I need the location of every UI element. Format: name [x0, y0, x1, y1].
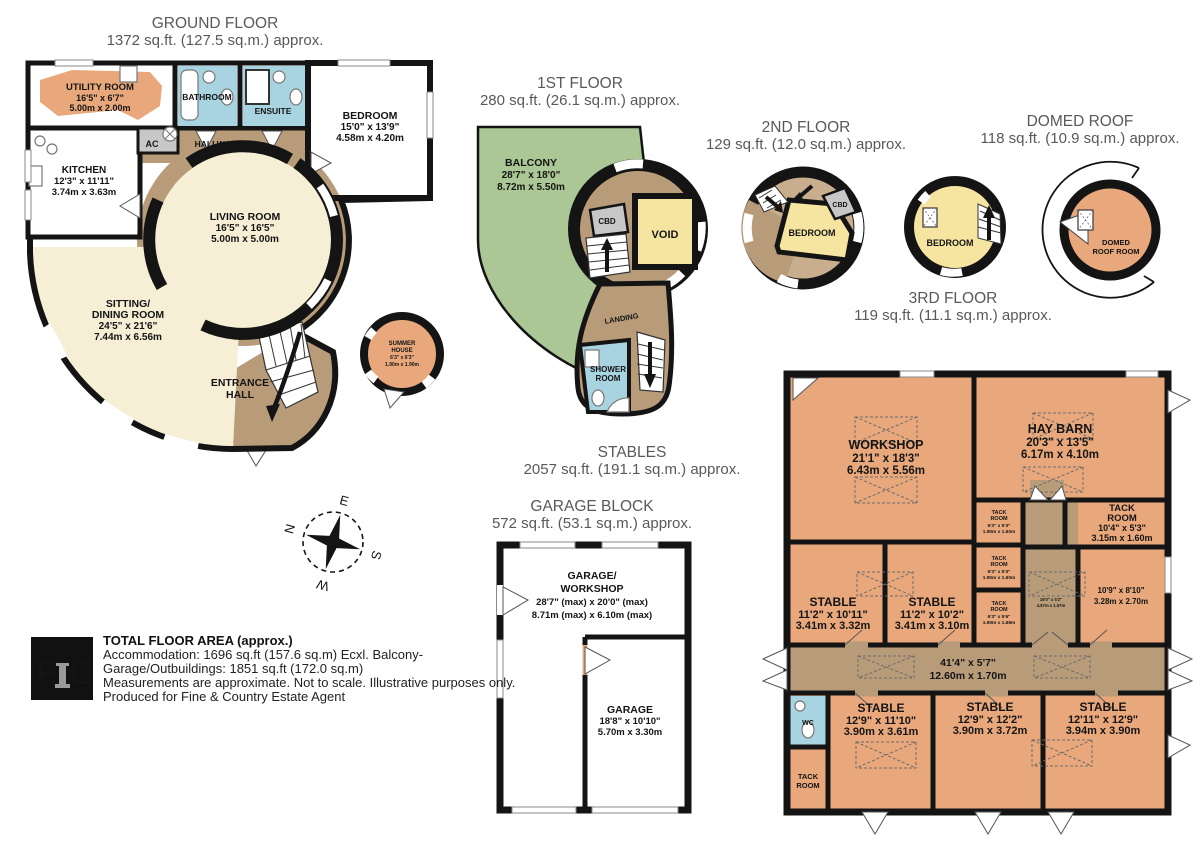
svg-text:21'1" x 18'3": 21'1" x 18'3": [852, 453, 920, 465]
shower-cubicle-icon: [246, 70, 269, 104]
svg-text:3.41m x 3.32m: 3.41m x 3.32m: [796, 620, 871, 632]
svg-text:28'7" x 18'0": 28'7" x 18'0": [502, 170, 561, 181]
shower-room-toilet-icon: [592, 390, 604, 406]
first-floor-title: 1ST FLOOR: [537, 75, 623, 92]
svg-text:12.60m x 1.70m: 12.60m x 1.70m: [929, 670, 1006, 682]
svg-text:BEDROOM: BEDROOM: [343, 110, 398, 122]
svg-text:SUMMER: SUMMER: [389, 341, 416, 347]
svg-text:6'3" x 5'3": 6'3" x 5'3": [988, 569, 1011, 575]
svg-text:20'3" x 13'5": 20'3" x 13'5": [1026, 437, 1094, 449]
room-label-shower: SHOWER: [590, 365, 626, 374]
svg-text:ROOM: ROOM: [990, 607, 1008, 613]
svg-text:3.15m x 1.60m: 3.15m x 1.60m: [1091, 533, 1152, 543]
footer-line3: Measurements are approximate. Not to sca…: [103, 675, 515, 690]
window: [1126, 371, 1158, 377]
svg-text:TACK: TACK: [798, 772, 819, 781]
footer-line2: Garage/Outbuildings: 1851 sq.ft (172.0 s…: [103, 661, 363, 676]
footer-title: TOTAL FLOOR AREA (approx.): [103, 633, 293, 648]
ground-floor-area: 1372 sq.ft. (127.5 sq.m.) approx.: [107, 32, 324, 49]
svg-text:HALL: HALL: [226, 389, 255, 401]
svg-text:UTILITY ROOM: UTILITY ROOM: [66, 82, 134, 93]
svg-text:ENTRANCE: ENTRANCE: [211, 377, 269, 389]
svg-text:1.90m x 1.68m: 1.90m x 1.68m: [983, 620, 1016, 626]
third-floor-title: 3RD FLOOR: [909, 290, 998, 307]
svg-text:5.70m x 3.30m: 5.70m x 3.30m: [598, 727, 662, 738]
svg-text:1.90m x 1.90m: 1.90m x 1.90m: [385, 362, 419, 368]
third-floor-plan: BEDROOM: [909, 181, 1001, 273]
stables-title: STABLES: [598, 444, 667, 461]
svg-text:3.28m x 2.70m: 3.28m x 2.70m: [1094, 597, 1148, 606]
svg-text:16'0" x 5'2": 16'0" x 5'2": [1040, 597, 1062, 602]
bathroom-sink-icon: [203, 71, 215, 83]
floorplan-page: GROUND FLOOR 1372 sq.ft. (127.5 sq.m.) a…: [0, 0, 1200, 845]
svg-text:6'3" x 6'3": 6'3" x 6'3": [390, 355, 414, 361]
svg-text:STABLE: STABLE: [857, 701, 904, 715]
first-floor-stairs-up: [586, 234, 630, 278]
logo-f: F: [36, 654, 57, 692]
svg-text:6.17m x 4.10m: 6.17m x 4.10m: [1021, 449, 1099, 461]
second-floor-area: 129 sq.ft. (12.0 sq.m.) approx.: [706, 136, 906, 153]
window: [25, 150, 31, 182]
garage-door-2: [592, 807, 678, 813]
svg-text:10'4" x 5'3": 10'4" x 5'3": [1098, 523, 1146, 533]
svg-text:3.94m x 3.90m: 3.94m x 3.90m: [1066, 725, 1141, 737]
room-label-cbd1: CBD: [598, 217, 616, 226]
svg-text:4.87m x 1.57m: 4.87m x 1.57m: [1037, 603, 1066, 608]
svg-text:3.41m x 3.10m: 3.41m x 3.10m: [895, 620, 970, 632]
svg-text:STABLE: STABLE: [1079, 700, 1126, 714]
svg-text:WORKSHOP: WORKSHOP: [561, 583, 624, 595]
room-label-corridor: 41'4" x 5'7" 12.60m x 1.70m: [929, 657, 1006, 682]
second-floor-title: 2ND FLOOR: [762, 119, 851, 136]
svg-text:3.90m x 3.72m: 3.90m x 3.72m: [953, 725, 1028, 737]
third-floor-area: 119 sq.ft. (11.1 sq.m.) approx.: [854, 307, 1052, 324]
svg-text:GARAGE: GARAGE: [607, 704, 653, 716]
wc-sink-icon: [795, 701, 805, 711]
svg-text:24'5" x 21'6": 24'5" x 21'6": [99, 321, 158, 332]
domed-roof-title: DOMED ROOF: [1027, 113, 1134, 130]
svg-text:1.90m x 1.60m: 1.90m x 1.60m: [983, 575, 1016, 581]
ground-floor-title: GROUND FLOOR: [152, 15, 279, 32]
room-label-bathroom: BATHROOM: [182, 92, 231, 102]
garage-block-area: 572 sq.ft. (53.1 sq.m.) approx.: [492, 515, 692, 532]
room-label-bedroom2: BEDROOM: [789, 228, 836, 238]
svg-text:4.58m x 4.20m: 4.58m x 4.20m: [336, 133, 404, 144]
footer-line4: Produced for Fine & Country Estate Agent: [103, 689, 345, 704]
footer-line1: Accommodation: 1696 sq.ft (157.6 sq.m) E…: [103, 647, 423, 662]
second-floor-plan: BEDROOM CBD: [741, 172, 859, 284]
room-label-cbd2: CBD: [832, 202, 847, 209]
window: [900, 371, 934, 377]
svg-text:STABLE: STABLE: [908, 595, 955, 609]
svg-text:3.90m x 3.61m: 3.90m x 3.61m: [844, 726, 919, 738]
domed-roof-area: 118 sq.ft. (10.9 sq.m.) approx.: [981, 130, 1180, 147]
svg-text:GARAGE/: GARAGE/: [567, 570, 616, 582]
stables-corridor: [787, 645, 1168, 693]
room-label-hay-barn: HAY BARN 20'3" x 13'5" 6.17m x 4.10m: [1021, 422, 1099, 461]
svg-text:10'9" x 8'10": 10'9" x 8'10": [1098, 586, 1145, 595]
room-label-ac: AC: [146, 139, 159, 149]
window: [1165, 557, 1171, 593]
room-label-bedroom3: BEDROOM: [927, 238, 974, 248]
svg-text:3.74m x 3.63m: 3.74m x 3.63m: [52, 187, 116, 198]
svg-text:12'3" x 11'11": 12'3" x 11'11": [54, 176, 114, 187]
room-label-workshop: WORKSHOP 21'1" x 18'3" 6.43m x 5.56m: [847, 438, 925, 477]
ensuite-toilet-icon: [290, 89, 302, 105]
room-label-living: LIVING ROOM 16'5" x 16'5" 5.00m x 5.00m: [210, 211, 281, 245]
logo-url: fineandcountry.com™: [40, 692, 84, 697]
svg-text:28'7" (max) x 20'0" (max): 28'7" (max) x 20'0" (max): [536, 597, 648, 608]
svg-text:16'5" x 16'5": 16'5" x 16'5": [216, 223, 275, 234]
svg-text:LIVING ROOM: LIVING ROOM: [210, 211, 281, 223]
floorplan-canvas: GROUND FLOOR 1372 sq.ft. (127.5 sq.m.) a…: [0, 0, 1200, 845]
svg-text:8.71m (max) x 6.10m (max): 8.71m (max) x 6.10m (max): [532, 610, 652, 621]
room-label-utility: UTILITY ROOM 16'5" x 6'7" 5.00m x 2.00m: [66, 82, 134, 113]
svg-text:ROOF ROOM: ROOF ROOM: [1092, 247, 1139, 256]
svg-text:6'3" x 5'6": 6'3" x 5'6": [988, 614, 1011, 620]
hob-icon: [35, 136, 45, 146]
room-label-tack-bottom: TACK ROOM: [796, 772, 819, 790]
svg-text:5.00m x 2.00m: 5.00m x 2.00m: [69, 103, 130, 113]
logo-amp: &: [58, 645, 70, 664]
stables-area: 2057 sq.ft. (191.1 sq.m.) approx.: [524, 461, 741, 478]
room-label-ensuite: ENSUITE: [255, 106, 292, 116]
ensuite-sink-icon: [273, 71, 285, 83]
svg-text:18'8" x 10'10": 18'8" x 10'10": [599, 716, 660, 727]
window: [427, 92, 433, 138]
first-floor-area: 280 sq.ft. (26.1 sq.m.) approx.: [480, 92, 680, 109]
svg-text:ROOM: ROOM: [796, 781, 819, 790]
svg-text:7.44m x 6.56m: 7.44m x 6.56m: [94, 332, 162, 343]
stables-plan: WORKSHOP 21'1" x 18'3" 6.43m x 5.56m HAY…: [763, 371, 1192, 834]
room-label-wc: WC: [802, 720, 814, 727]
svg-text:HOUSE: HOUSE: [391, 348, 412, 354]
svg-text:15'0" x 13'9": 15'0" x 13'9": [341, 122, 400, 133]
agent-logo: F & C fineandcountry.com™: [31, 637, 95, 700]
logo-c: C: [70, 654, 95, 692]
svg-text:DINING ROOM: DINING ROOM: [92, 309, 165, 321]
svg-text:HAY BARN: HAY BARN: [1028, 422, 1093, 436]
svg-text:BALCONY: BALCONY: [505, 157, 557, 169]
svg-text:6.43m x 5.56m: 6.43m x 5.56m: [847, 465, 925, 477]
garage-block-title: GARAGE BLOCK: [530, 498, 654, 515]
window: [338, 60, 390, 66]
svg-text:8.72m x 5.50m: 8.72m x 5.50m: [497, 182, 565, 193]
svg-text:5.00m x 5.00m: 5.00m x 5.00m: [211, 234, 279, 245]
svg-text:16'5" x 6'7": 16'5" x 6'7": [76, 93, 124, 103]
svg-text:STABLE: STABLE: [809, 595, 856, 609]
svg-text:ROOM: ROOM: [990, 562, 1008, 568]
svg-text:KITCHEN: KITCHEN: [62, 165, 106, 176]
window: [55, 60, 93, 66]
room-label-hallway: HALLWAY: [195, 139, 236, 149]
landing-stairs-down: [637, 332, 665, 392]
svg-text:STABLE: STABLE: [966, 700, 1013, 714]
svg-text:ROOM: ROOM: [990, 516, 1008, 522]
svg-text:41'4" x 5'7": 41'4" x 5'7": [940, 657, 996, 669]
svg-text:1.90m x 1.60m: 1.90m x 1.60m: [983, 529, 1016, 535]
room-label-void: VOID: [652, 229, 679, 241]
room-label-bedroom: BEDROOM 15'0" x 13'9" 4.58m x 4.20m: [336, 110, 404, 144]
washer-icon: [120, 66, 137, 82]
window: [25, 190, 31, 220]
svg-text:6'3" x 5'3": 6'3" x 5'3": [988, 523, 1011, 529]
room-label-passage: 16'0" x 5'2" 4.87m x 1.57m: [1037, 597, 1066, 608]
svg-text:DOMED: DOMED: [1102, 238, 1131, 247]
svg-text:WORKSHOP: WORKSHOP: [849, 438, 924, 452]
room-label-garage: GARAGE 18'8" x 10'10" 5.70m x 3.30m: [598, 704, 662, 738]
garage-door-1: [512, 807, 576, 813]
window: [602, 542, 658, 548]
window: [520, 542, 575, 548]
svg-text:ROOM: ROOM: [596, 374, 621, 383]
